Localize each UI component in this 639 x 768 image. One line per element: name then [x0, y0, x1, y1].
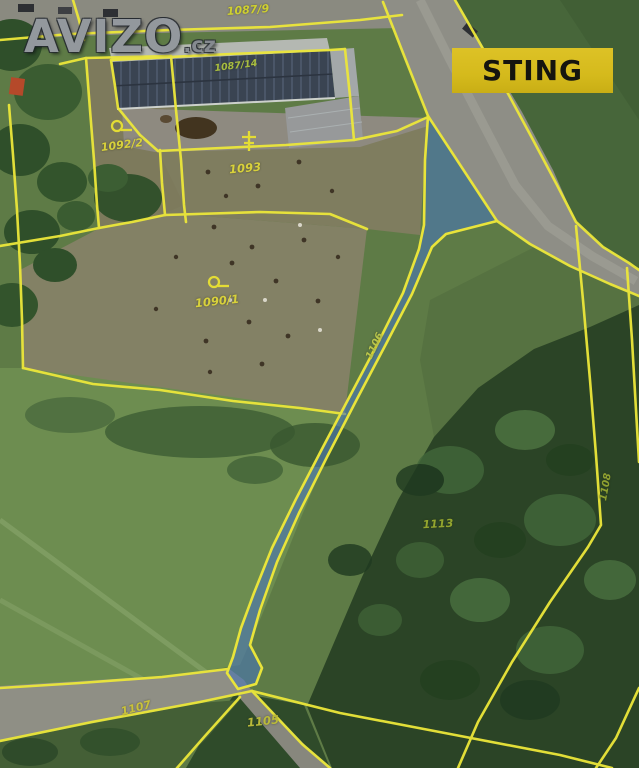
watermark-tld: .cz: [183, 33, 216, 57]
watermark-brand: AVIZO: [24, 10, 183, 63]
map-graphics: [0, 0, 639, 768]
watermark-logo: AVIZO.cz: [24, 14, 216, 59]
agency-badge: STING: [452, 48, 613, 93]
aerial-map: 1087/9 1087/14 1092/2 1093 1090/1 1106 1…: [0, 0, 639, 768]
